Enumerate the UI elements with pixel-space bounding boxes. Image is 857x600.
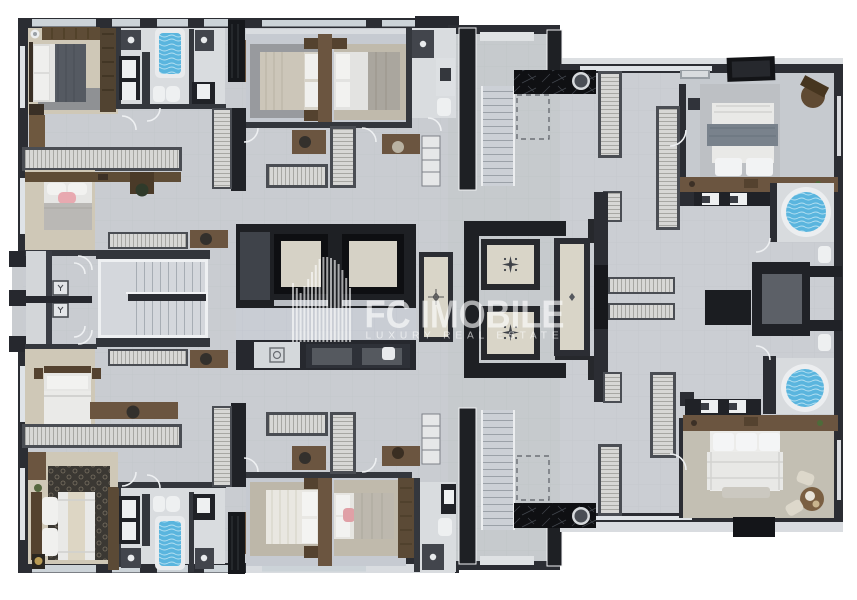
svg-text:LUXURY REAL ESTATE: LUXURY REAL ESTATE xyxy=(366,330,564,342)
